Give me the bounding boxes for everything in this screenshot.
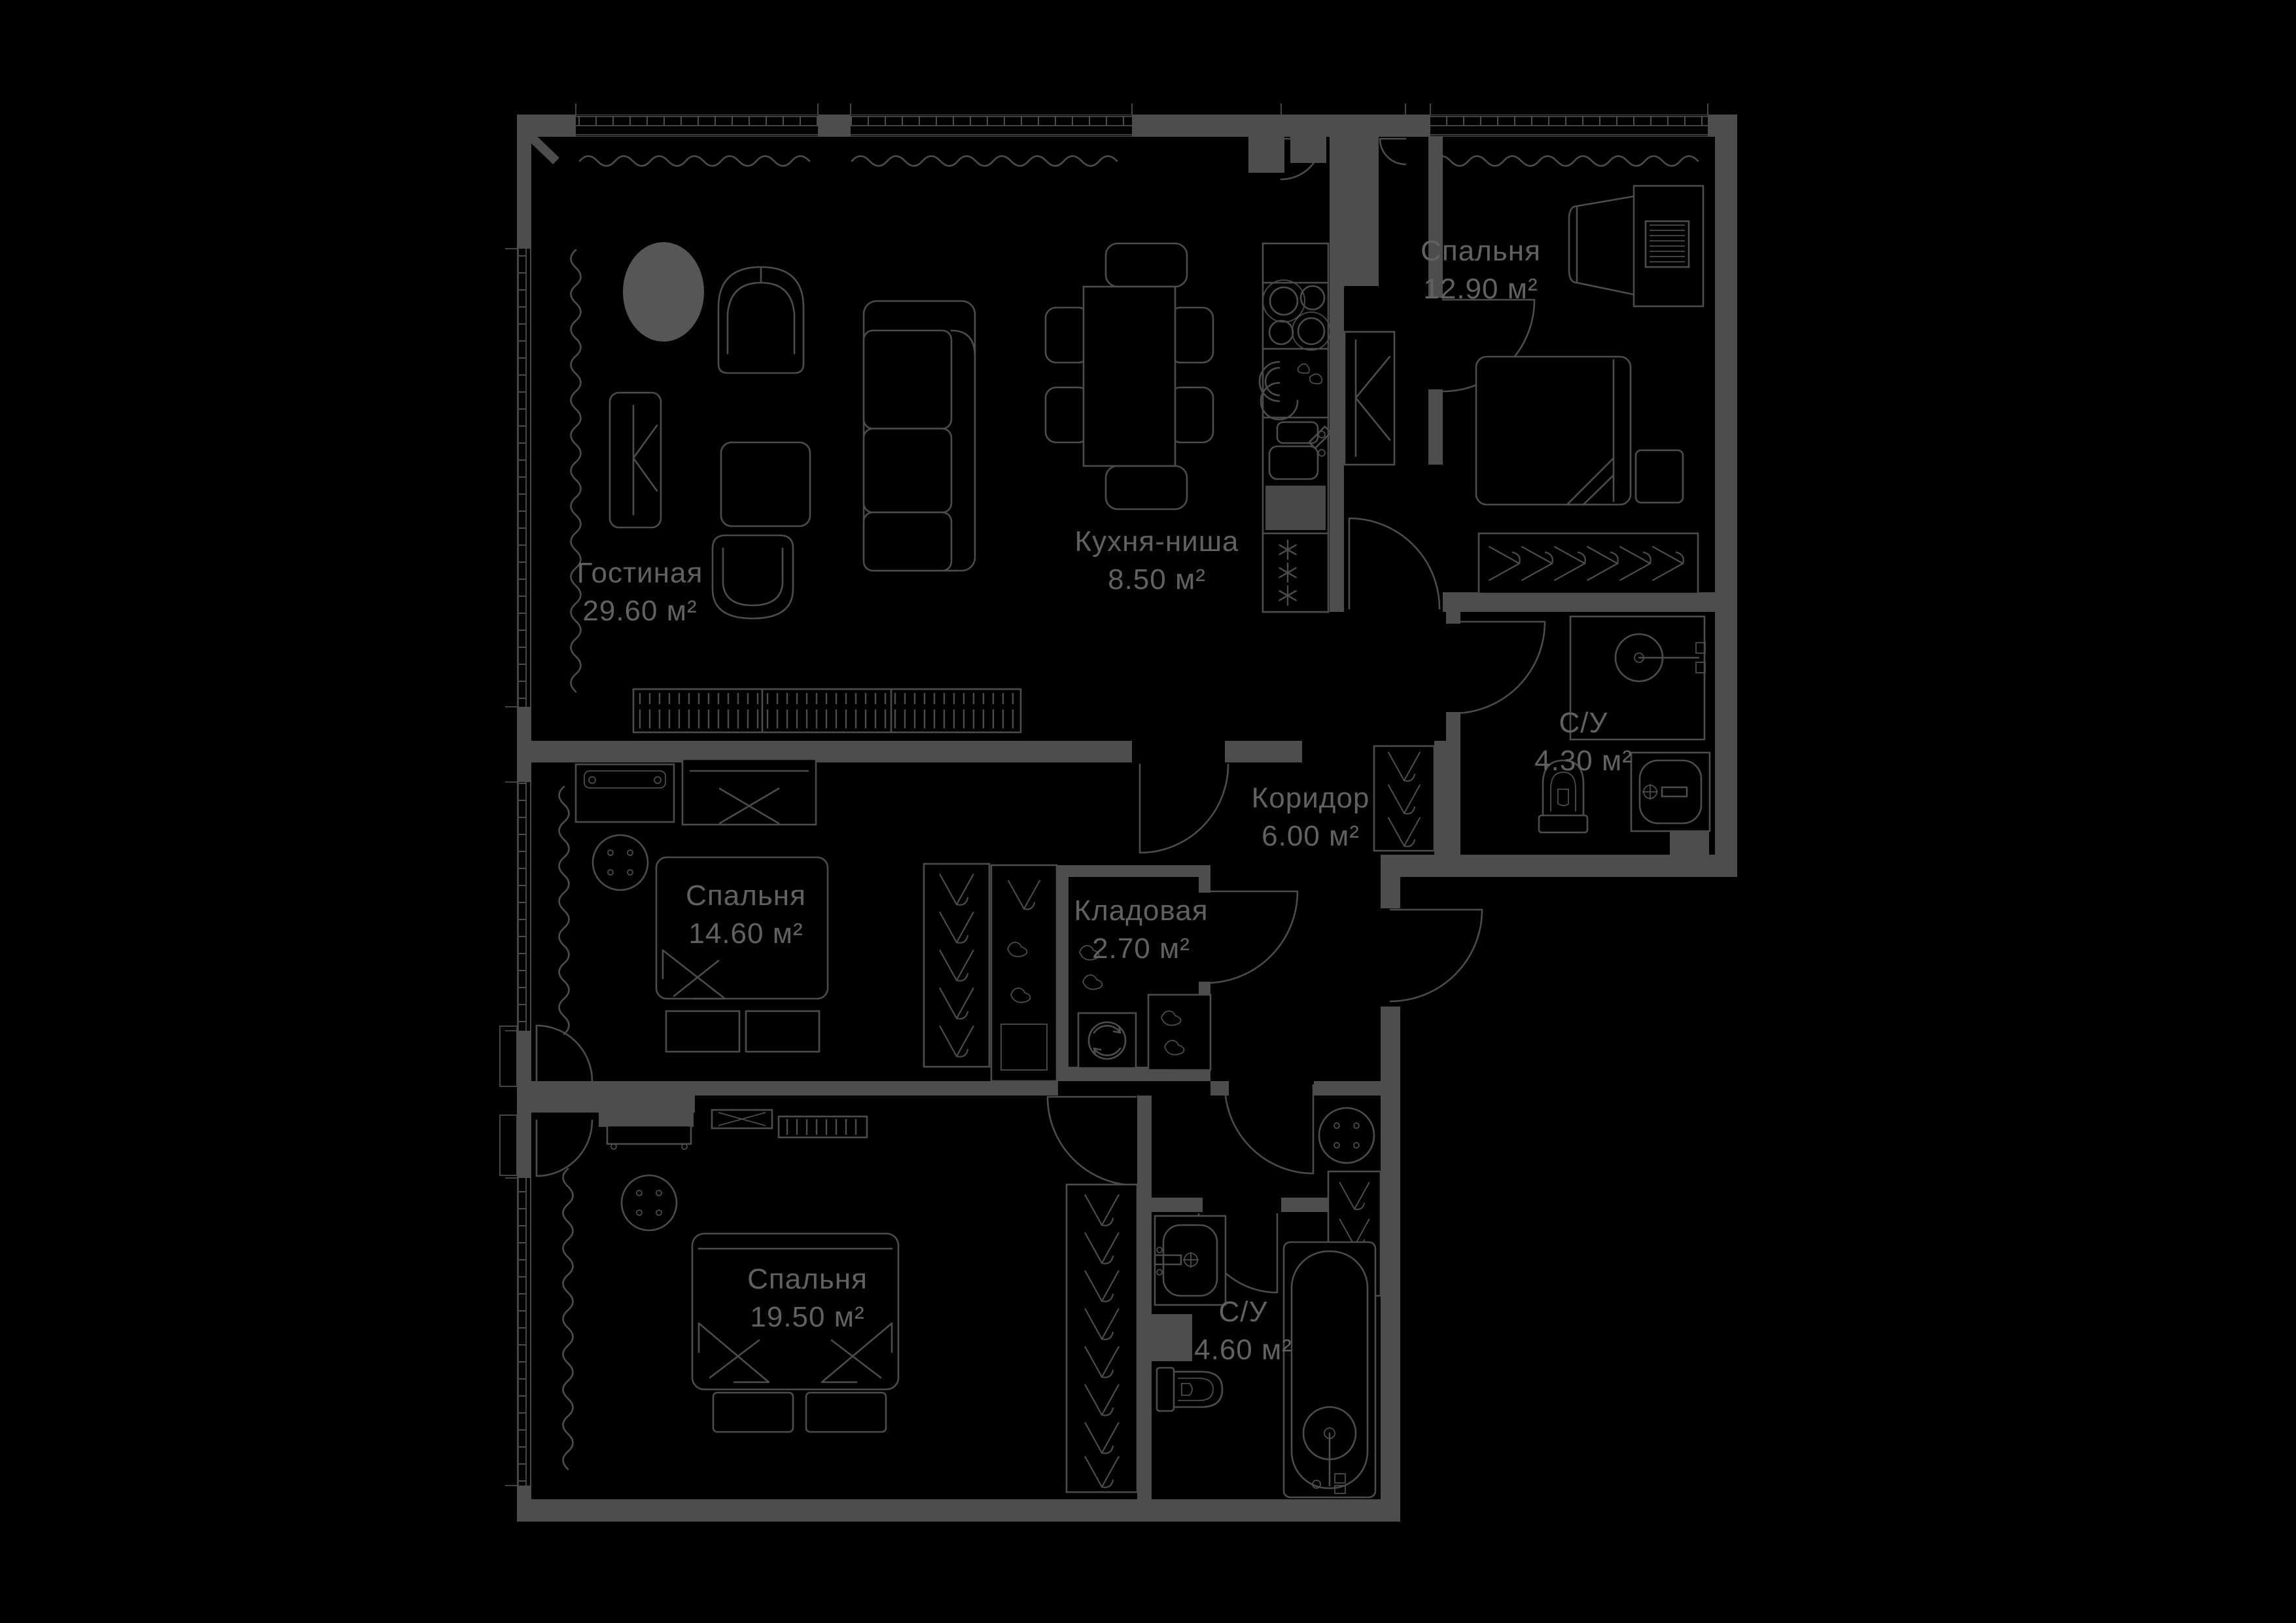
curtain-wave — [1433, 156, 1698, 166]
corridor-furniture — [1374, 746, 1434, 851]
wardrobe — [1479, 533, 1698, 594]
dining-chair — [1106, 466, 1187, 509]
armchair — [718, 267, 804, 373]
door-arc — [1206, 891, 1298, 983]
wardrobe — [924, 864, 989, 1067]
media-console — [633, 689, 1021, 732]
rug — [623, 242, 704, 342]
desk — [682, 759, 816, 825]
room-label-bathroom-2: С/У 4.60 м² — [1194, 1293, 1292, 1369]
floor-plan: Гостиная 29.60 м² Кухня-ниша 8.50 м² Спа… — [0, 0, 2296, 1623]
wardrobe — [1067, 1185, 1137, 1492]
dining-chair — [1106, 243, 1187, 287]
curtain-wave — [559, 787, 569, 1034]
round-table — [1319, 1108, 1374, 1163]
nightstand — [806, 1393, 886, 1432]
dining-chair — [1046, 308, 1089, 363]
window — [1430, 115, 1708, 136]
door-arc — [1048, 1097, 1136, 1185]
room-name: Спальня — [686, 877, 806, 915]
dining-chair — [1170, 308, 1213, 363]
room-name: Спальня — [747, 1260, 868, 1298]
room-area: 6.00 м² — [1252, 817, 1370, 855]
kitchen-furniture — [1260, 243, 1394, 612]
curtain-wave — [580, 156, 809, 166]
washing-machine — [1078, 1013, 1136, 1068]
window — [518, 249, 531, 707]
toilet — [1157, 1368, 1222, 1411]
floor-plan-drawing — [0, 0, 2296, 1623]
bathroom-sink — [1155, 1216, 1226, 1305]
bathtub — [1284, 1242, 1375, 1497]
dimension-ticks — [576, 103, 1708, 115]
nightstand — [666, 1011, 739, 1052]
room-label-storage: Кладовая 2.70 м² — [1074, 892, 1208, 968]
room-label-bathroom-1: С/У 4.30 м² — [1534, 704, 1633, 780]
room-label-kitchen: Кухня-ниша 8.50 м² — [1074, 523, 1239, 599]
room-area: 14.60 м² — [686, 915, 806, 953]
room-name: Спальня — [1421, 232, 1541, 270]
round-table — [622, 1175, 677, 1230]
dining-chair — [1046, 387, 1089, 442]
nightstand — [746, 1011, 819, 1052]
door-arc — [1140, 764, 1228, 853]
tall-cabinet — [1263, 533, 1328, 612]
curtain-wave — [563, 1169, 573, 1469]
room-area: 19.50 м² — [747, 1298, 868, 1336]
desk-chair — [1577, 196, 1634, 294]
appliance-block — [1265, 486, 1326, 530]
room-label-living: Гостиная 29.60 м² — [577, 554, 703, 630]
window — [518, 1178, 531, 1486]
room-label-bedroom-3: Спальня 19.50 м² — [747, 1260, 868, 1336]
room-label-bedroom-2: Спальня 14.60 м² — [686, 877, 806, 953]
round-table — [593, 835, 648, 890]
window — [518, 782, 531, 1031]
nightstand — [713, 1393, 793, 1432]
room-area: 4.30 м² — [1534, 742, 1633, 780]
tv-stand — [610, 393, 661, 527]
dining-chair — [1170, 387, 1213, 442]
desk — [1569, 186, 1703, 306]
coat-closet — [1345, 332, 1394, 465]
room-area: 4.60 м² — [1194, 1331, 1292, 1369]
vent-shaft — [1248, 137, 1284, 173]
door-arc — [1349, 518, 1439, 609]
room-name: Коридор — [1252, 779, 1370, 817]
tv-bench — [607, 1126, 691, 1149]
shoes-icon — [1083, 975, 1102, 990]
room-name: Кладовая — [1074, 892, 1208, 930]
closet — [991, 865, 1057, 1081]
wardrobe — [1374, 746, 1434, 851]
entrance-pillar — [1330, 115, 1379, 286]
bedroom-2-furniture — [576, 759, 1057, 1081]
dining-table — [1084, 287, 1175, 466]
room-area: 2.70 м² — [1074, 930, 1208, 968]
door-arc — [1225, 1085, 1313, 1173]
armchair — [713, 535, 793, 618]
dimension-ticks — [505, 249, 517, 1486]
dining-set — [1046, 243, 1213, 509]
curtain-wave — [852, 156, 1117, 166]
bed — [1476, 357, 1631, 505]
bathroom-sink — [1631, 753, 1710, 831]
room-area: 29.60 м² — [577, 592, 703, 630]
ottoman — [721, 442, 810, 526]
room-name: Гостиная — [577, 554, 703, 592]
room-area: 12.90 м² — [1421, 270, 1541, 308]
door-arc — [1453, 622, 1545, 713]
dresser — [576, 764, 674, 822]
window — [851, 115, 1132, 136]
room-label-bedroom-1: Спальня 12.90 м² — [1421, 232, 1541, 308]
room-name: С/У — [1534, 704, 1633, 742]
dresser — [712, 1110, 772, 1128]
sofa — [864, 301, 975, 571]
window — [576, 115, 818, 136]
room-label-corridor: Коридор 6.00 м² — [1252, 779, 1370, 855]
balcony-door-frame — [500, 1115, 517, 1175]
bedroom-3-furniture — [607, 1110, 1137, 1492]
shoe-cabinet — [1148, 995, 1210, 1070]
room-name: Кухня-ниша — [1074, 523, 1239, 561]
laptop-icon — [1646, 221, 1689, 267]
nightstand — [1636, 450, 1683, 503]
living-room-furniture — [610, 242, 1213, 732]
balcony-door-frame — [500, 1026, 517, 1086]
door-arc — [1390, 910, 1482, 1001]
room-area: 8.50 м² — [1074, 561, 1239, 599]
room-name: С/У — [1194, 1293, 1292, 1331]
